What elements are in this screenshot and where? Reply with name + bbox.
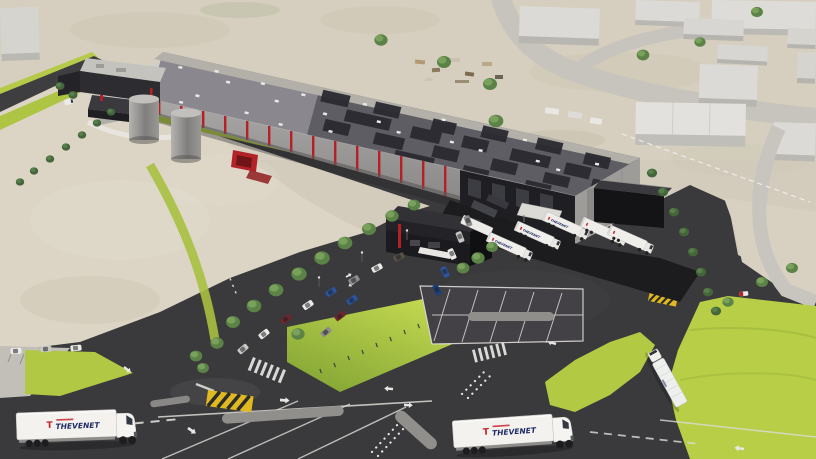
silo-2 [171,109,201,164]
red-white-car [739,291,748,296]
architectural-rendering: THEVENET THEVENET THEVENET [0,0,816,459]
truck-a: T THEVENET [16,409,137,452]
truck-parking [420,286,583,344]
silo-1 [129,95,159,145]
truck-logo-text: THEVENET [55,421,100,432]
east-annex [587,180,672,228]
